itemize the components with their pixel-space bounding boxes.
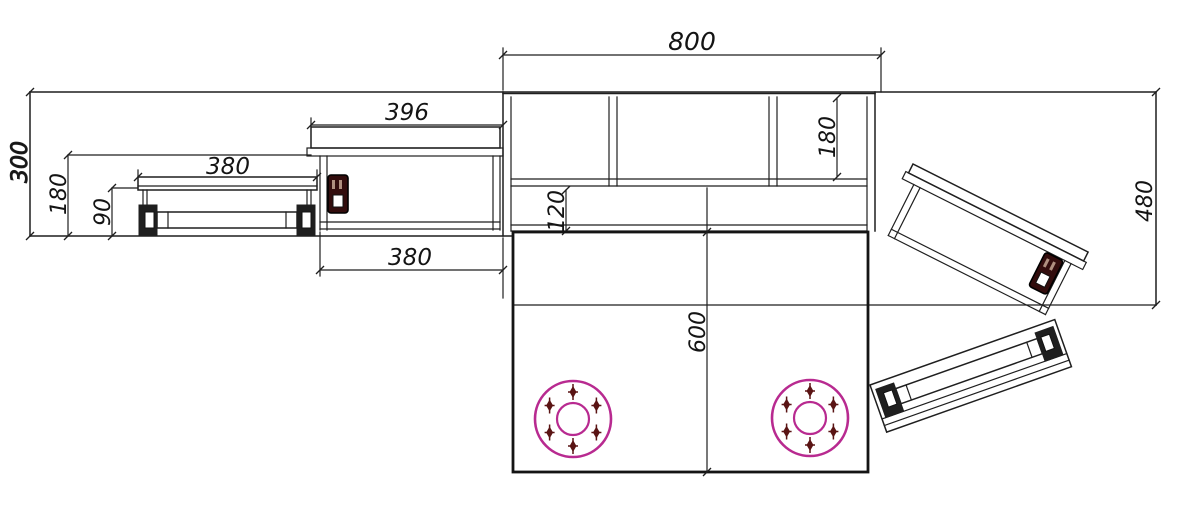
bench-roller bbox=[157, 212, 297, 228]
flange-left-inner-circle bbox=[557, 403, 589, 435]
tilted-bench bbox=[870, 320, 1071, 433]
dim-label-800: 800 bbox=[668, 27, 716, 56]
main-unit-panel-bottom bbox=[511, 179, 867, 186]
cad-canvas: 300 180 90 380 bbox=[0, 0, 1193, 527]
flange-left-bolt-marks bbox=[545, 384, 602, 454]
dim-label-380-bottom: 380 bbox=[388, 245, 432, 271]
dim-feed-table-width: 396 bbox=[307, 100, 507, 129]
dim-label-180-left: 180 bbox=[47, 173, 72, 215]
dim-label-600: 600 bbox=[686, 311, 711, 353]
dim-label-480: 480 bbox=[1133, 180, 1158, 222]
feed-bench bbox=[138, 177, 317, 236]
flange-right-bolt-marks bbox=[782, 383, 839, 453]
dim-feed-table-base: 380 bbox=[316, 232, 507, 298]
dim-label-300: 300 bbox=[8, 141, 33, 183]
dim-panel-height: 180 bbox=[816, 94, 841, 181]
tilted-table-lip bbox=[902, 172, 1086, 270]
feed-table-top bbox=[311, 127, 500, 148]
main-unit-mullion-left bbox=[609, 97, 617, 186]
dim-label-90: 90 bbox=[91, 198, 116, 226]
tilted-table-top bbox=[909, 164, 1089, 261]
tilted-table bbox=[877, 163, 1091, 321]
feed-table bbox=[307, 127, 503, 230]
feed-table-lip bbox=[307, 148, 503, 156]
cad-drawing: 300 180 90 380 bbox=[0, 0, 1193, 527]
dim-apron-height: 120 bbox=[545, 186, 570, 235]
flange-right-inner-circle bbox=[794, 402, 826, 434]
dim-feed-table-height: 180 bbox=[47, 151, 311, 240]
dim-label-380-top: 380 bbox=[206, 154, 250, 180]
dim-feed-bench-height: 90 bbox=[91, 184, 138, 240]
feed-table-motor bbox=[328, 175, 348, 213]
dim-label-120: 120 bbox=[545, 190, 570, 232]
tilted-bench-roller bbox=[896, 339, 1043, 404]
outer-boundary bbox=[30, 92, 1156, 305]
main-unit-mullion-right bbox=[769, 97, 777, 186]
dim-label-180-panel: 180 bbox=[816, 116, 841, 158]
dim-main-unit-width: 800 bbox=[499, 27, 885, 92]
dim-label-396: 396 bbox=[385, 100, 429, 126]
